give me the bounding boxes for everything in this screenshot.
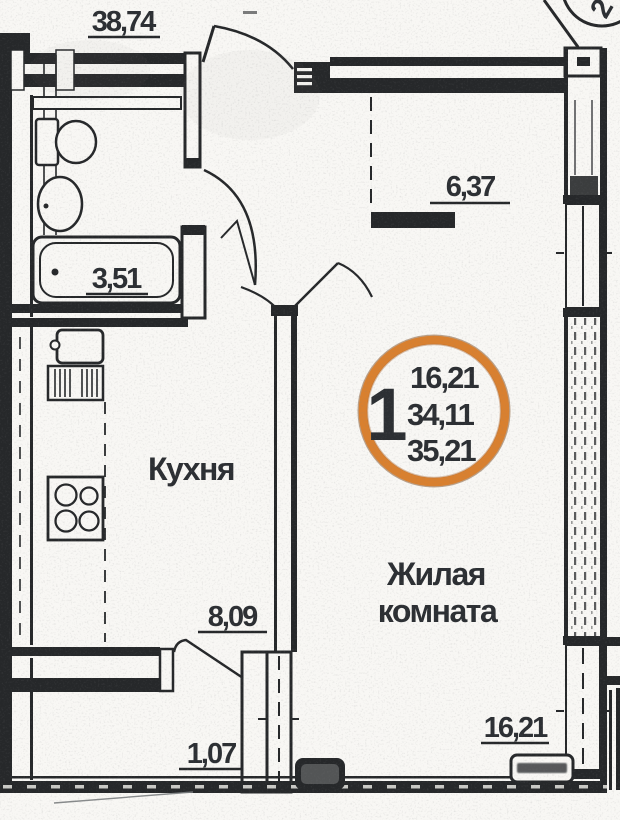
floor-plan-scan: 2 38,74 6,37 3,51 8,09 1,07 16,21 Кухня …	[0, 0, 620, 820]
scan-grain-overlay	[0, 0, 620, 820]
floor-plan-drawing: 2 38,74 6,37 3,51 8,09 1,07 16,21 Кухня …	[0, 0, 620, 820]
